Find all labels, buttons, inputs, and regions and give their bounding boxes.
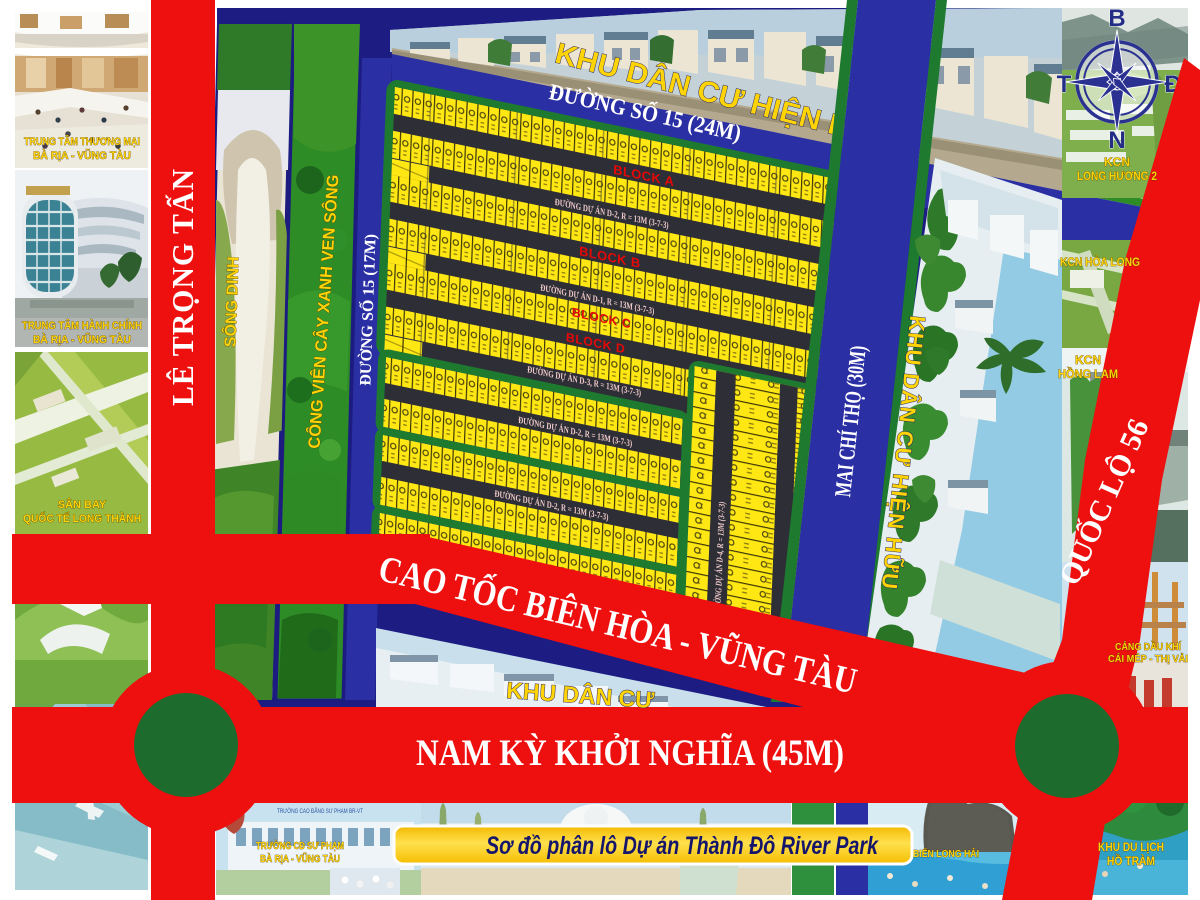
svg-text:KCN: KCN bbox=[1075, 353, 1101, 367]
svg-text:T: T bbox=[1057, 71, 1072, 98]
svg-text:TRUNG TÂM HÀNH CHÍNH: TRUNG TÂM HÀNH CHÍNH bbox=[22, 319, 142, 332]
svg-text:SÂN BAY: SÂN BAY bbox=[58, 498, 107, 511]
svg-text:Sơ đồ phân lô Dự án Thành Đô R: Sơ đồ phân lô Dự án Thành Đô River Park bbox=[486, 832, 879, 860]
svg-text:QUỐC TẾ LONG THÀNH: QUỐC TẾ LONG THÀNH bbox=[23, 511, 141, 525]
svg-text:BIỂN LONG HẢI: BIỂN LONG HẢI bbox=[913, 847, 979, 860]
svg-text:NAM KỲ KHỞI NGHĨA (45M): NAM KỲ KHỞI NGHĨA (45M) bbox=[416, 732, 844, 774]
svg-text:N: N bbox=[1108, 127, 1125, 154]
svg-text:LÊ TRỌNG TẤN: LÊ TRỌNG TẤN bbox=[164, 168, 200, 406]
svg-text:BÀ RỊA - VŨNG TÀU: BÀ RỊA - VŨNG TÀU bbox=[33, 149, 131, 162]
svg-text:KCN: KCN bbox=[1104, 155, 1130, 169]
svg-text:LONG HƯƠNG 2: LONG HƯƠNG 2 bbox=[1077, 169, 1157, 183]
svg-text:TRƯỜNG CĐ SƯ PHẠM: TRƯỜNG CĐ SƯ PHẠM bbox=[256, 839, 344, 852]
svg-text:TRƯỜNG CAO ĐẲNG SƯ PHẠM BR-VT: TRƯỜNG CAO ĐẲNG SƯ PHẠM BR-VT bbox=[277, 808, 363, 815]
svg-text:CÁI MÉP - THỊ VẢI: CÁI MÉP - THỊ VẢI bbox=[1108, 652, 1188, 665]
svg-text:CẢNG DẦU KHÍ: CẢNG DẦU KHÍ bbox=[1115, 640, 1181, 653]
svg-text:BÀ RỊA - VŨNG TÀU: BÀ RỊA - VŨNG TÀU bbox=[33, 333, 131, 346]
svg-text:TRUNG TÂM THƯƠNG MẠI: TRUNG TÂM THƯƠNG MẠI bbox=[24, 135, 140, 148]
svg-text:BÀ RỊA - VŨNG TÀU: BÀ RỊA - VŨNG TÀU bbox=[260, 852, 340, 865]
svg-text:KHU DU LỊCH: KHU DU LỊCH bbox=[1098, 842, 1164, 854]
svg-text:KCN HÒA LONG: KCN HÒA LONG bbox=[1060, 254, 1140, 269]
svg-text:HỒNG LAM: HỒNG LAM bbox=[1058, 366, 1118, 381]
svg-text:HỒ TRÀM: HỒ TRÀM bbox=[1107, 855, 1155, 868]
svg-text:B: B bbox=[1108, 5, 1125, 32]
